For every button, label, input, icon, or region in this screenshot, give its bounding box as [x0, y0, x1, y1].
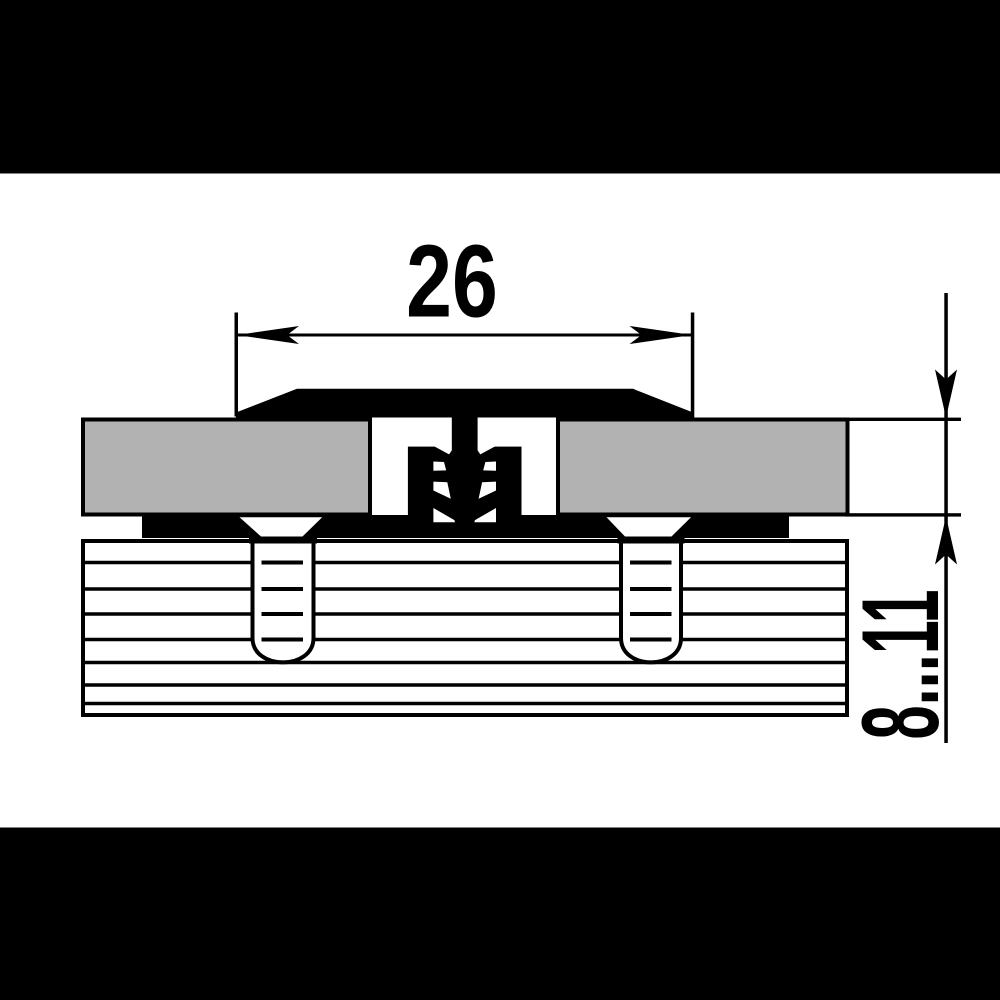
- svg-text:26: 26: [406, 224, 498, 339]
- svg-text:8...11: 8...11: [838, 589, 961, 739]
